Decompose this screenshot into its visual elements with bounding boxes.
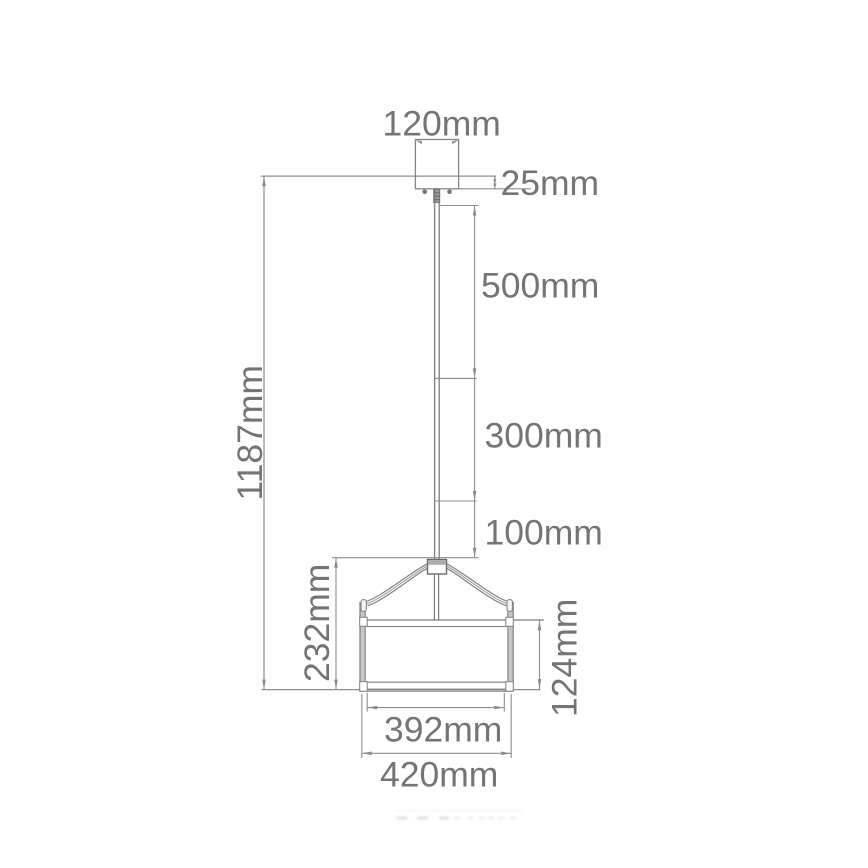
svg-text:1187mm: 1187mm (230, 365, 270, 500)
svg-text:120mm: 120mm (383, 104, 501, 144)
svg-text:420mm: 420mm (380, 754, 498, 794)
svg-text:300mm: 300mm (485, 416, 603, 456)
svg-text:124mm: 124mm (545, 599, 585, 717)
svg-text:232mm: 232mm (297, 564, 337, 682)
svg-text:392mm: 392mm (384, 709, 502, 749)
svg-text:500mm: 500mm (481, 266, 599, 306)
svg-text:25mm: 25mm (501, 163, 600, 203)
svg-text:100mm: 100mm (485, 513, 603, 553)
